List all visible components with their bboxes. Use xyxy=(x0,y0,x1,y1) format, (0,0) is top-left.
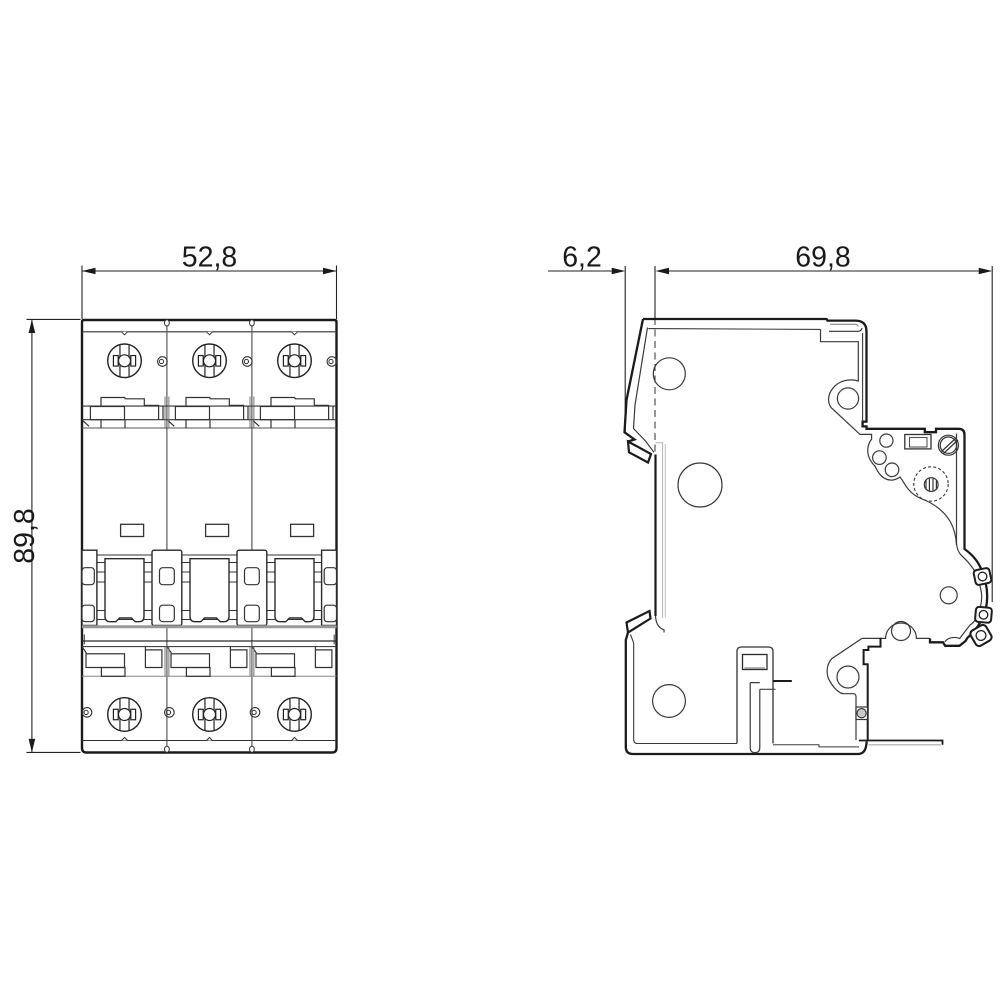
svg-text:69,8: 69,8 xyxy=(795,242,850,274)
svg-text:6,2: 6,2 xyxy=(562,242,602,274)
svg-text:89,8: 89,8 xyxy=(9,508,41,563)
svg-text:52,8: 52,8 xyxy=(182,242,237,274)
